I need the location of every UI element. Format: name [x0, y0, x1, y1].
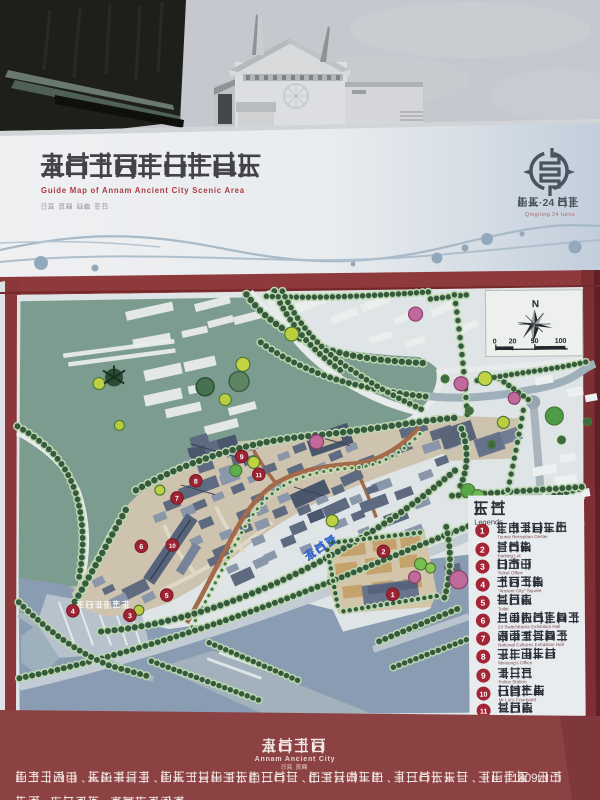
svg-text:Toilet: Toilet: [498, 606, 509, 611]
svg-text:11: 11: [256, 473, 263, 479]
svg-text:7: 7: [481, 634, 486, 644]
svg-text:"Ancient City" Square: "Ancient City" Square: [498, 588, 542, 593]
svg-text:1: 1: [480, 526, 485, 536]
svg-text:20: 20: [509, 338, 517, 345]
svg-text:1: 1: [391, 592, 395, 599]
svg-text:2: 2: [381, 549, 385, 556]
svg-text:0: 0: [493, 338, 497, 345]
svg-text:·24: ·24: [539, 197, 554, 209]
svg-text:9: 9: [481, 671, 486, 681]
svg-text:7: 7: [175, 496, 179, 503]
svg-text:4: 4: [480, 580, 485, 590]
svg-text:National Cultures Exhibition H: National Cultures Exhibition Hall: [498, 642, 564, 648]
svg-text:1309: 1309: [512, 773, 538, 785]
svg-text:50: 50: [531, 338, 539, 345]
svg-text:8: 8: [194, 479, 198, 486]
svg-text:2: 2: [480, 545, 485, 555]
svg-text:5: 5: [480, 598, 485, 608]
svg-text:11: 11: [480, 709, 488, 716]
svg-text:3: 3: [128, 613, 132, 620]
svg-text:Guide Map of Annam Ancient Cit: Guide Map of Annam Ancient City Scenic A…: [41, 186, 245, 195]
svg-text:4: 4: [71, 609, 75, 616]
svg-text:10: 10: [169, 544, 176, 550]
svg-text:100: 100: [555, 338, 567, 345]
svg-text:Mr Liu's Courtyard: Mr Liu's Courtyard: [499, 697, 537, 702]
svg-text:Meisong's Office: Meisong's Office: [498, 660, 532, 665]
svg-text:6: 6: [481, 616, 486, 626]
svg-text:Ticket Office: Ticket Office: [498, 570, 524, 575]
svg-text:N: N: [532, 299, 539, 310]
svg-text:8: 8: [481, 652, 486, 662]
svg-text:Parking Lot: Parking Lot: [497, 553, 521, 558]
svg-text:24 Switchbacks Exhibition Hall: 24 Switchbacks Exhibition Hall: [498, 624, 560, 629]
svg-text:Tourist Reception Center: Tourist Reception Center: [497, 534, 548, 539]
svg-text:10: 10: [480, 692, 488, 699]
svg-text:Police Station: Police Station: [498, 679, 527, 684]
svg-text:5: 5: [165, 593, 169, 600]
svg-text:9: 9: [240, 454, 244, 461]
svg-text:3: 3: [480, 562, 485, 572]
svg-text:6: 6: [139, 544, 143, 551]
svg-text:Annam Ancient City: Annam Ancient City: [255, 756, 336, 763]
svg-text:Qinglong 24 turns: Qinglong 24 turns: [525, 212, 575, 218]
